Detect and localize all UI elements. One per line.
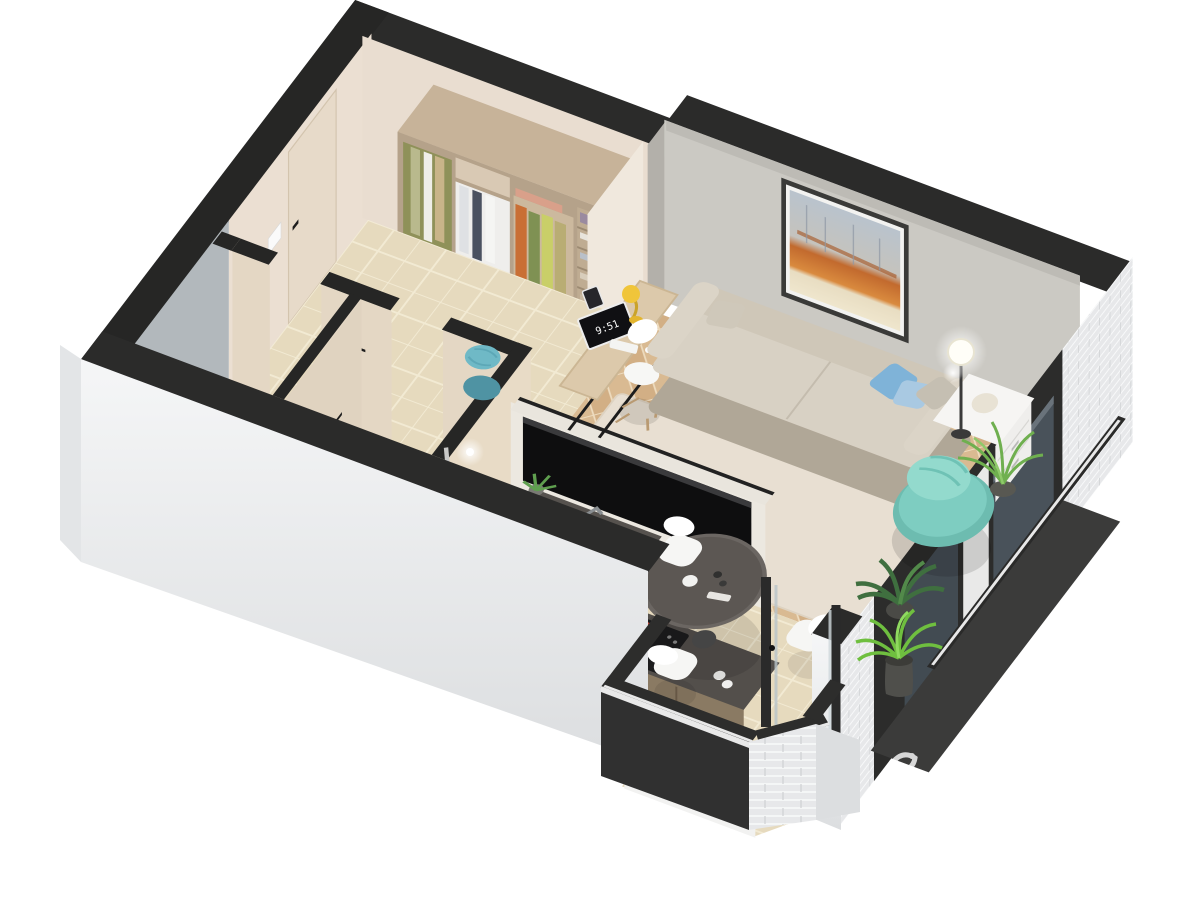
lens-sparkle-2 <box>943 363 963 383</box>
loggia-brick-chamfer <box>749 724 816 830</box>
floorplan-scene: 9:51 <box>0 0 1200 900</box>
watermark-text: циан <box>935 746 1110 814</box>
floorplan-render: 9:51 <box>0 0 1200 900</box>
loggia-brick-side <box>816 724 860 820</box>
exterior-wall-left-edge <box>60 345 81 562</box>
lens-sparkle-core <box>466 448 474 456</box>
